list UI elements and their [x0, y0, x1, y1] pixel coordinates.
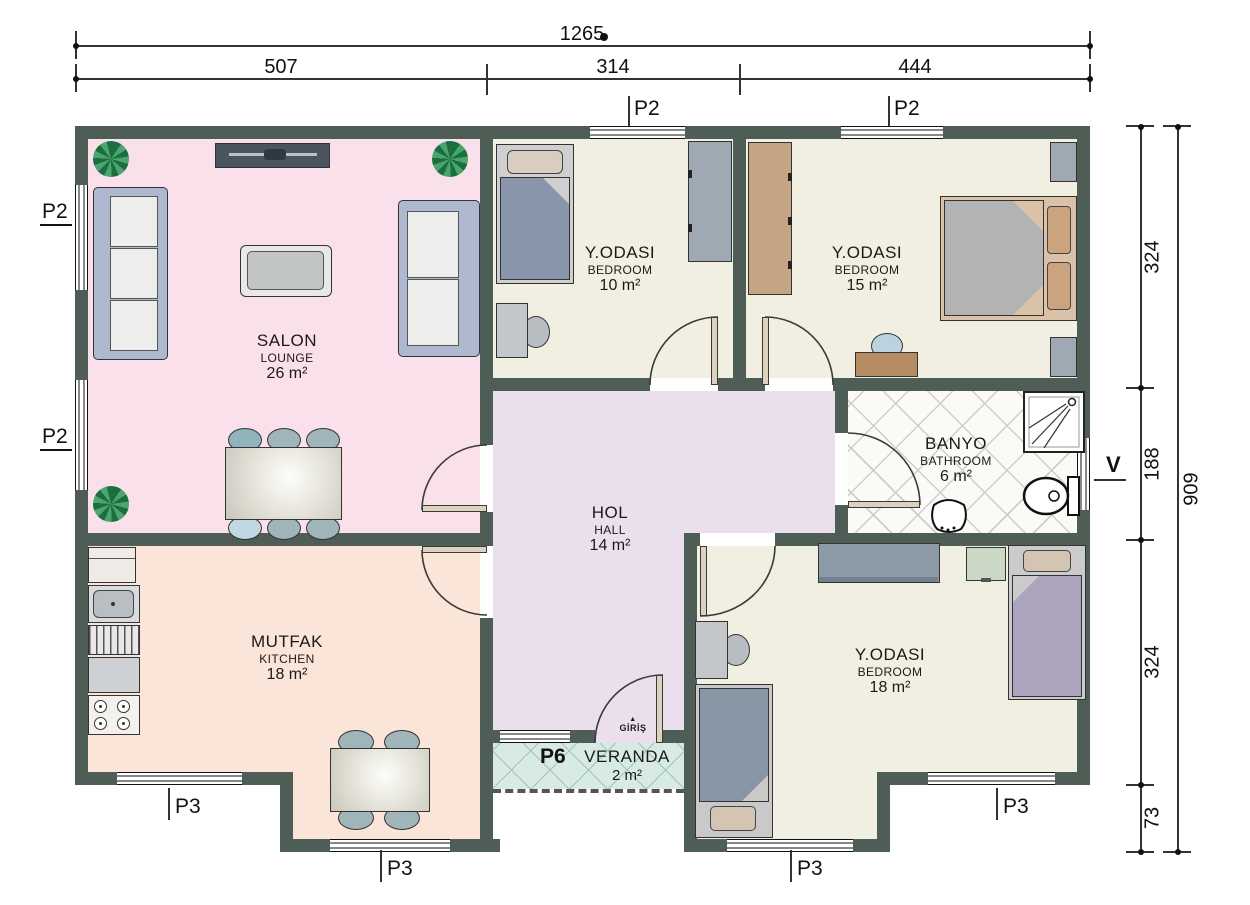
bedroom-small-label: Y.ODASI BEDROOM 10 m² — [585, 243, 655, 295]
dim-right-seg: 324 — [1142, 240, 1165, 273]
window-label-p2: P2 — [894, 97, 920, 121]
sink-dot — [953, 527, 956, 530]
room-name: Y.ODASI — [585, 243, 655, 263]
window-label-p3: P3 — [1003, 795, 1029, 819]
stove — [88, 695, 140, 735]
kitchen-table — [330, 748, 430, 812]
door-arc-bathroom — [848, 433, 920, 505]
dim-dot — [1138, 385, 1144, 391]
room-type: LOUNGE — [257, 351, 317, 365]
plant-icon — [432, 141, 468, 177]
blanket-fold — [1013, 201, 1043, 231]
nightstand — [1050, 142, 1077, 182]
room-name: SALON — [257, 331, 317, 351]
p2-tick — [888, 96, 890, 126]
room-area: 6 m² — [920, 468, 992, 486]
dim-tick — [486, 64, 488, 95]
window-label-p6: P6 — [540, 745, 566, 769]
blanket-fold — [543, 178, 569, 204]
tv-unit — [215, 143, 330, 168]
dim-line-right-segments — [1140, 126, 1142, 852]
door-arc-kitchen — [422, 550, 487, 615]
tv-base — [264, 149, 286, 160]
sofa-right — [398, 200, 480, 357]
dim-right-total: 909 — [1181, 472, 1204, 505]
window-label-p2: P2 — [40, 425, 72, 451]
dim-top-seg: 444 — [898, 56, 931, 79]
door-arc-bedroom-bottom — [700, 546, 775, 616]
bed-single-small — [496, 144, 574, 284]
fridge — [88, 547, 136, 583]
hall-label: HOL HALL 14 m² — [590, 503, 631, 555]
dim-dot — [1138, 849, 1144, 855]
wardrobe-handle — [688, 170, 692, 178]
sofa-cushion — [110, 196, 158, 247]
room-type: BEDROOM — [585, 263, 655, 277]
dim-right-seg: 188 — [1142, 447, 1165, 480]
dresser — [818, 543, 940, 583]
p3-tick — [996, 788, 998, 820]
v-tick — [1094, 479, 1126, 481]
sofa-cushion — [110, 300, 158, 351]
kitchen-label: MUTFAK KITCHEN 18 m² — [251, 632, 323, 684]
window-label-p3: P3 — [175, 795, 201, 819]
sofa-cushion — [110, 248, 158, 299]
wardrobe-handle — [688, 224, 692, 232]
window-label-p3: P3 — [797, 857, 823, 881]
stove-burner — [117, 717, 130, 730]
bed-pillow — [507, 150, 563, 174]
wardrobe-handle — [788, 261, 792, 269]
room-area: 10 m² — [585, 277, 655, 295]
sink-icon — [932, 500, 966, 532]
salon-label: SALON LOUNGE 26 m² — [257, 331, 317, 383]
sink-dot — [941, 527, 944, 530]
window-label-p2: P2 — [634, 97, 660, 121]
bed-blanket — [500, 177, 570, 280]
dish-rack — [88, 625, 140, 655]
toilet-icon — [1024, 478, 1068, 514]
room-area: 15 m² — [832, 277, 902, 295]
sofa-cushion — [407, 211, 459, 278]
bed-pillow — [1047, 206, 1071, 254]
dim-dot — [1138, 124, 1144, 130]
p3-tick — [790, 850, 792, 882]
dim-dot — [1138, 537, 1144, 543]
stove-burner — [94, 717, 107, 730]
kitchen-counter — [88, 657, 140, 693]
coffee-table — [240, 245, 332, 297]
dim-dot — [1138, 782, 1144, 788]
bathroom-label: BANYO BATHROOM 6 m² — [920, 434, 992, 486]
window-label-v: V — [1106, 452, 1121, 478]
toilet-drain — [1049, 491, 1059, 501]
dim-line-right-total — [1177, 126, 1179, 852]
entrance-label: ▲ GİRİŞ — [619, 717, 646, 733]
blanket-fold — [1013, 285, 1043, 315]
entrance-text: GİRİŞ — [619, 723, 646, 733]
wardrobe-handle — [788, 217, 792, 225]
desk — [496, 303, 528, 358]
room-type: KITCHEN — [251, 652, 323, 666]
veranda-label: VERANDA 2 m² — [584, 747, 670, 784]
dim-top-seg: 507 — [264, 56, 297, 79]
dim-dot — [73, 43, 79, 49]
room-type: HALL — [590, 523, 631, 537]
floor-plan: SALON LOUNGE 26 m² Y.ODASI BEDROOM 10 m²… — [0, 0, 1250, 905]
nightstand — [1050, 337, 1077, 377]
toilet-tank — [1068, 477, 1079, 515]
stove-burner — [94, 700, 107, 713]
stove-burner — [117, 700, 130, 713]
bed-blanket — [699, 688, 769, 802]
dim-right-seg: 324 — [1142, 645, 1165, 678]
dim-top-total: 1265 — [560, 23, 605, 46]
bedroom-master-label: Y.ODASI BEDROOM 15 m² — [832, 243, 902, 295]
room-area: 2 m² — [584, 767, 670, 784]
room-area: 14 m² — [590, 537, 631, 555]
coffee-table-top — [247, 251, 324, 290]
room-type: BEDROOM — [832, 263, 902, 277]
sofa-left — [93, 187, 168, 360]
dim-right-seg: 73 — [1142, 807, 1165, 829]
room-area: 26 m² — [257, 365, 317, 383]
room-name: Y.ODASI — [832, 243, 902, 263]
window-label-p3: P3 — [387, 857, 413, 881]
plant-icon — [93, 141, 129, 177]
door-arc-bedroom-small — [650, 317, 718, 385]
blanket-fold — [742, 775, 768, 801]
window-label-p2: P2 — [40, 200, 72, 226]
bed-pillow — [1047, 262, 1071, 310]
room-type: BEDROOM — [855, 665, 925, 679]
desk — [695, 621, 728, 679]
bed-double — [940, 196, 1077, 321]
kitchen-sink — [88, 585, 140, 623]
bed-single-purple — [1008, 545, 1086, 700]
dim-dot — [73, 76, 79, 82]
room-type: BATHROOM — [920, 454, 992, 468]
shower-head-icon — [1069, 399, 1076, 406]
p3-tick — [168, 788, 170, 820]
sofa-cushion — [407, 279, 459, 346]
room-name: VERANDA — [584, 747, 670, 767]
dim-dot — [1087, 76, 1093, 82]
nightstand-handle — [981, 578, 991, 582]
room-name: HOL — [590, 503, 631, 523]
bed-blanket — [1012, 575, 1082, 697]
blanket-fold — [1013, 576, 1039, 602]
nightstand-green — [966, 547, 1006, 581]
bed-single-gray — [695, 684, 773, 838]
room-name: Y.ODASI — [855, 645, 925, 665]
room-name: MUTFAK — [251, 632, 323, 652]
bed-pillow — [710, 806, 756, 831]
faucet-dot — [111, 602, 115, 606]
dim-top-seg: 314 — [596, 56, 629, 79]
dim-dot — [1087, 43, 1093, 49]
wardrobe-handle — [788, 173, 792, 181]
bed-mattress — [944, 200, 1044, 316]
fridge-line — [89, 558, 135, 559]
door-arc-bedroom-master — [765, 317, 833, 385]
p2-tick — [628, 96, 630, 126]
wardrobe-gray — [688, 141, 732, 262]
p3-tick — [380, 850, 382, 882]
room-area: 18 m² — [251, 666, 323, 684]
bedroom-bottom-label: Y.ODASI BEDROOM 18 m² — [855, 645, 925, 697]
desk-wood — [855, 352, 918, 377]
room-area: 18 m² — [855, 679, 925, 697]
room-name: BANYO — [920, 434, 992, 454]
plant-icon — [93, 486, 129, 522]
sink-dot — [947, 529, 950, 532]
dresser-edge — [819, 577, 938, 582]
bed-pillow — [1023, 550, 1071, 572]
dining-table — [225, 447, 342, 520]
dim-tick — [739, 64, 741, 95]
dim-line-top-segments — [75, 78, 1090, 80]
wardrobe-wood — [748, 142, 792, 295]
dim-dot — [1175, 849, 1181, 855]
dim-dot — [1175, 124, 1181, 130]
door-arc-salon — [422, 445, 487, 510]
